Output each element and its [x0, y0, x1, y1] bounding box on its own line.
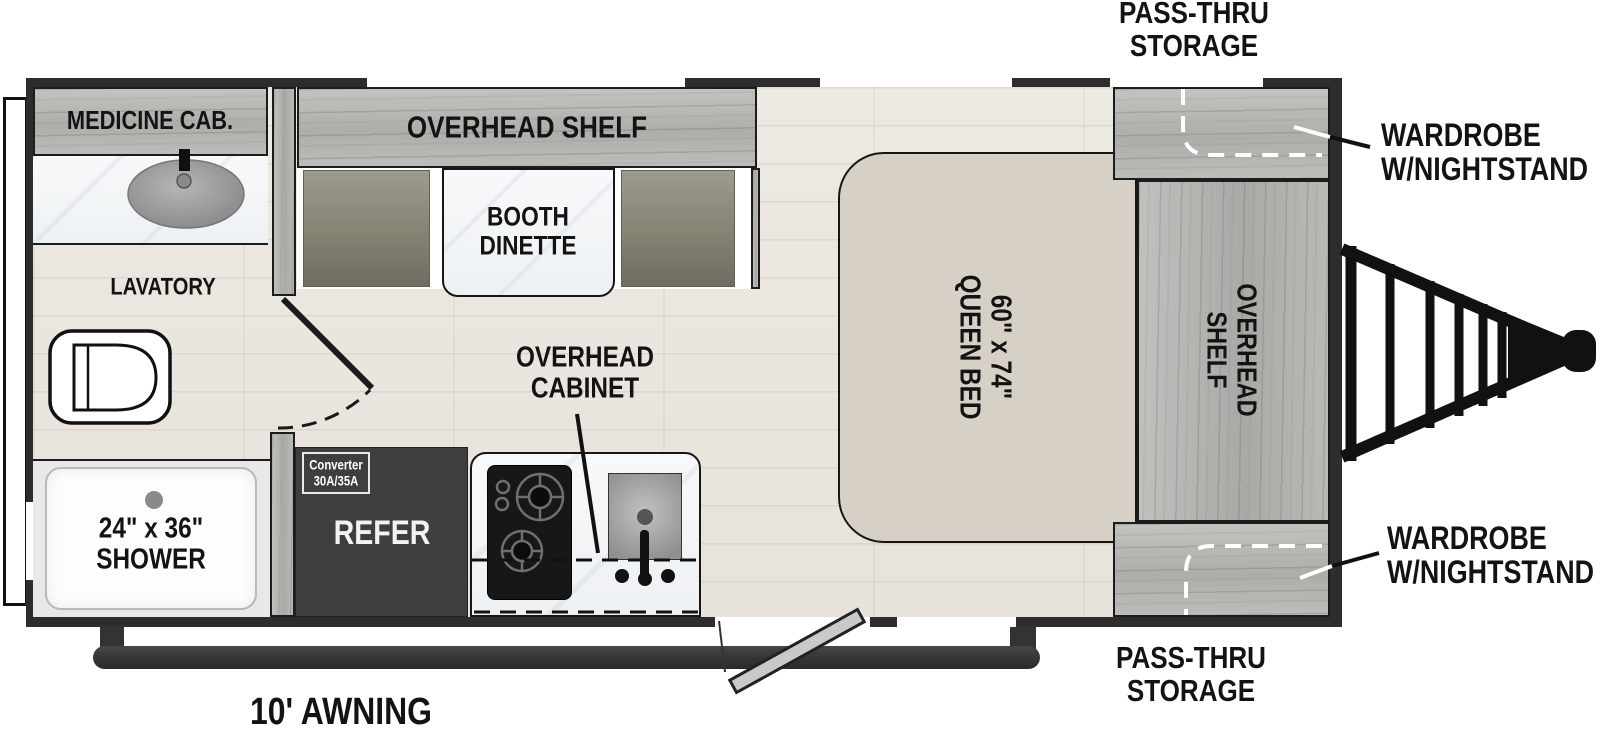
awning-label: 10' AWNING [250, 692, 432, 732]
overhead-cabinet-label: OVERHEAD CABINET [516, 342, 654, 403]
shower-label: 24" x 36" SHOWER [96, 513, 206, 574]
entry-door [719, 609, 864, 692]
dinette-shelf-label: OVERHEAD SHELF [407, 112, 647, 145]
wardrobe-bottom-label: WARDROBE W/NIGHTSTAND [1387, 522, 1594, 590]
refer-label: REFER [334, 515, 431, 551]
wardrobe-top-label: WARDROBE W/NIGHTSTAND [1381, 119, 1588, 187]
kitchen-faucet [615, 509, 675, 586]
lav-sink [128, 149, 244, 228]
cooktop-burners [496, 474, 563, 571]
hitch [1342, 246, 1596, 461]
shower-head [145, 491, 163, 509]
wardrobe-pointers [1294, 127, 1379, 578]
floorplan: MEDICINE CAB. LAVATORY 24" x 36" SHOWER … [0, 0, 1600, 737]
converter-label: Converter 30A/35A [309, 457, 363, 488]
toilet [50, 331, 170, 423]
bathroom-door [278, 299, 372, 428]
counter-dashed-lines [472, 560, 699, 612]
medicine-cab-label: MEDICINE CAB. [67, 107, 233, 135]
pass-thru-bottom-label: PASS-THRU STORAGE [1116, 642, 1266, 708]
lavatory-label: LAVATORY [110, 274, 215, 299]
queen-bed-label: 60" x 74" QUEEN BED [954, 275, 1015, 420]
bed-shelf-label: OVERHEAD SHELF [1202, 283, 1261, 416]
cabinet-pointer-line [577, 414, 598, 553]
booth-dinette-label: BOOTH DINETTE [479, 202, 576, 259]
pass-thru-top-label: PASS-THRU STORAGE [1119, 0, 1269, 63]
